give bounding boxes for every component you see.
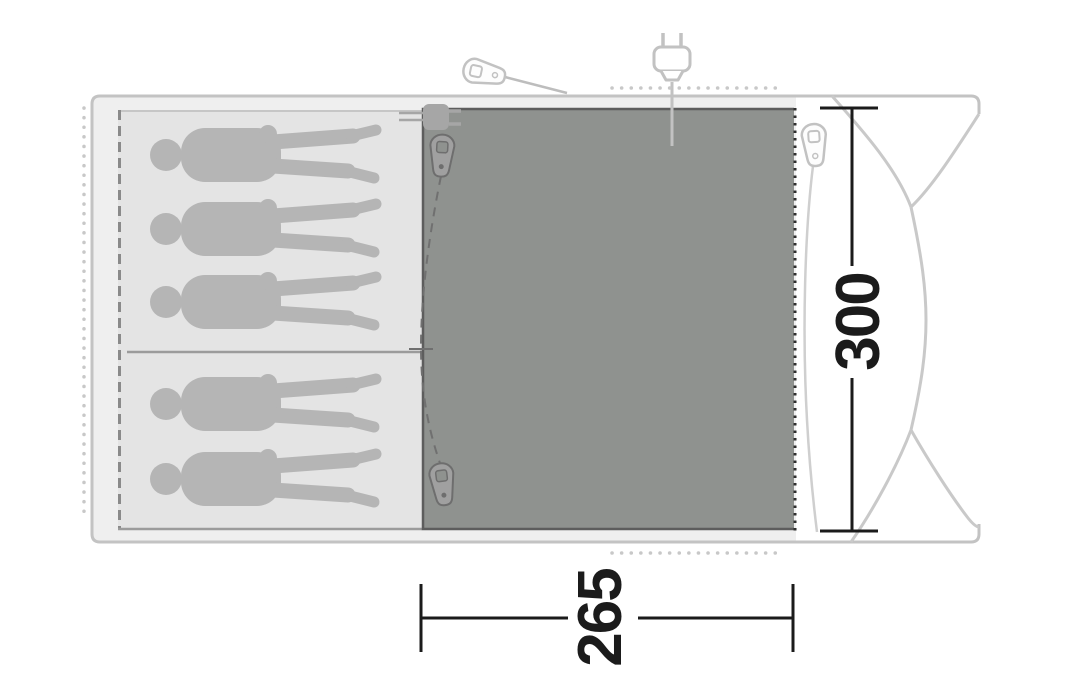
groundsheet	[422, 108, 794, 530]
zipper-pull-icon	[461, 57, 507, 89]
front-seam-bottom-left	[851, 430, 911, 542]
front-seam-top-right	[911, 114, 979, 207]
front-seam-middle	[911, 207, 926, 430]
front-seam-bottom-right	[911, 430, 979, 527]
tent-floorplan-diagram: 300 265	[0, 0, 1078, 700]
top-external-zip	[461, 57, 567, 93]
top-zip-cord-line	[505, 77, 567, 93]
dimension-depth: 300	[820, 108, 893, 531]
dimension-width-label: 265	[566, 569, 635, 667]
dimension-depth-label: 300	[824, 273, 893, 370]
front-door-zip-line	[805, 166, 817, 532]
sleeping-area	[118, 110, 422, 530]
living-area-groundsheet	[399, 104, 795, 531]
front-seam-top-left	[832, 96, 911, 207]
dimension-width: 265	[421, 569, 793, 667]
zipper-pull-icon	[801, 123, 828, 167]
